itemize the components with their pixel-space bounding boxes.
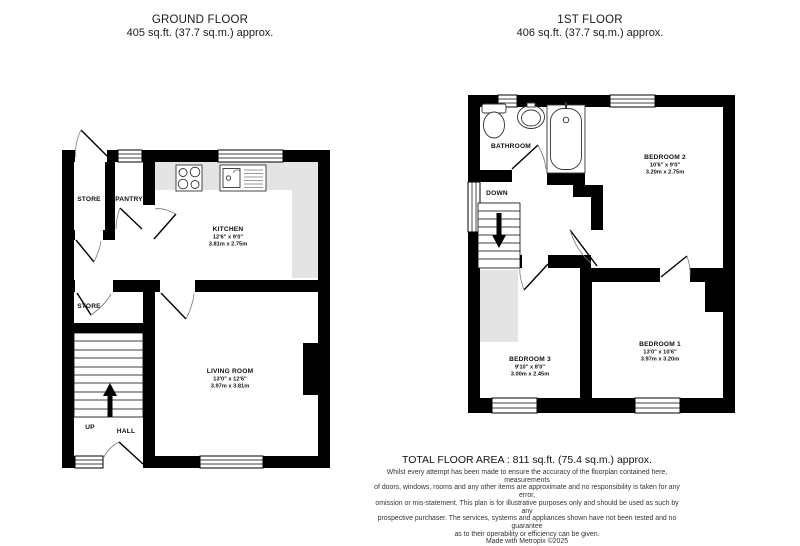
chimney-breast-living bbox=[303, 343, 318, 395]
living-room-door bbox=[161, 293, 194, 319]
kitchen-dims-imperial: 12'6" x 9'0" bbox=[213, 235, 244, 241]
toilet-fixture bbox=[482, 104, 506, 138]
disclaimer-line: as to their operability or efficiency ca… bbox=[372, 531, 682, 539]
first-floor-header: 1ST FLOOR 406 sq.ft. (37.7 sq.m.) approx… bbox=[445, 13, 735, 40]
pantry-door bbox=[116, 208, 142, 229]
bedroom2-dims-metric: 3.20m x 2.75m bbox=[646, 170, 685, 176]
bedroom3-dims-metric: 3.00m x 2.45m bbox=[511, 372, 550, 378]
bedroom1-window bbox=[635, 398, 680, 413]
store1-label: STORE bbox=[77, 196, 101, 203]
bedroom1-door bbox=[661, 256, 690, 277]
living-room-window bbox=[200, 456, 263, 468]
store2-label: STORE bbox=[77, 303, 101, 310]
bedroom3-dims-imperial: 9'10" x 8'0" bbox=[515, 365, 546, 371]
store-front-door bbox=[76, 240, 101, 262]
bathtub-fixture bbox=[547, 102, 585, 173]
living-room-label: LIVING ROOM bbox=[207, 368, 254, 375]
first-floor-plan: BATHROOM DOWN BEDROOM 2 10'6" x 9'0" 3.2… bbox=[460, 80, 750, 430]
metropix-credit: Made with Metropix ©2025 bbox=[372, 538, 682, 546]
kitchen-window bbox=[218, 150, 283, 162]
ground-floor-title: GROUND FLOOR bbox=[55, 13, 345, 27]
kitchen-sink-fixture bbox=[220, 165, 266, 191]
bedroom2-label: BEDROOM 2 bbox=[644, 154, 686, 161]
bedroom2-window bbox=[610, 95, 655, 107]
total-floor-area: TOTAL FLOOR AREA : 811 sq.ft. (75.4 sq.m… bbox=[372, 454, 682, 466]
footer: TOTAL FLOOR AREA : 811 sq.ft. (75.4 sq.m… bbox=[372, 454, 682, 546]
bedroom1-dims-imperial: 13'0" x 10'6" bbox=[643, 350, 677, 356]
kitchen-door bbox=[154, 209, 176, 239]
bathroom-label: BATHROOM bbox=[491, 143, 531, 150]
walls bbox=[62, 150, 330, 468]
bedroom3-label: BEDROOM 3 bbox=[509, 356, 551, 363]
hall-label: HALL bbox=[117, 428, 135, 435]
hob-fixture bbox=[176, 165, 202, 191]
bedroom3-window bbox=[492, 398, 537, 413]
store-exterior-door bbox=[76, 130, 107, 157]
up-label: UP bbox=[85, 424, 95, 431]
pantry-window bbox=[118, 150, 142, 162]
bedroom2-dims-imperial: 10'6" x 9'0" bbox=[650, 163, 681, 169]
bedroom1-dims-metric: 3.97m x 3.20m bbox=[641, 357, 680, 363]
bedroom1-label: BEDROOM 1 bbox=[639, 341, 681, 348]
pantry-label: PANTRY bbox=[115, 196, 143, 203]
living-dims-imperial: 13'0" x 12'6" bbox=[213, 377, 247, 383]
disclaimer-line: of doors, windows, rooms and any other i… bbox=[372, 484, 682, 499]
first-floor-title: 1ST FLOOR bbox=[445, 13, 735, 27]
front-door bbox=[104, 442, 143, 464]
kitchen-label: KITCHEN bbox=[213, 226, 244, 233]
kitchen-dims-metric: 3.81m x 2.75m bbox=[209, 242, 248, 248]
stair-bulkhead bbox=[478, 270, 518, 342]
first-floor-area: 406 sq.ft. (37.7 sq.m.) approx. bbox=[445, 27, 735, 40]
ground-floor-area: 405 sq.ft. (37.7 sq.m.) approx. bbox=[55, 27, 345, 40]
ground-floor-plan: STORE PANTRY KITCHEN 12'6" x 9'0" 3.81m … bbox=[55, 115, 335, 475]
down-label: DOWN bbox=[486, 190, 508, 197]
bedroom3-door bbox=[520, 264, 548, 290]
ground-floor-header: GROUND FLOOR 405 sq.ft. (37.7 sq.m.) app… bbox=[55, 13, 345, 40]
living-dims-metric: 3.97m x 3.81m bbox=[211, 384, 250, 390]
disclaimer-line: omission or mis-statement. This plan is … bbox=[372, 500, 682, 515]
disclaimer-line: Whilst every attempt has been made to en… bbox=[372, 469, 682, 484]
stairs-up bbox=[74, 333, 143, 417]
stairs-down bbox=[478, 203, 520, 268]
hall-window bbox=[75, 456, 103, 468]
disclaimer-line: prospective purchaser. The services, sys… bbox=[372, 515, 682, 530]
